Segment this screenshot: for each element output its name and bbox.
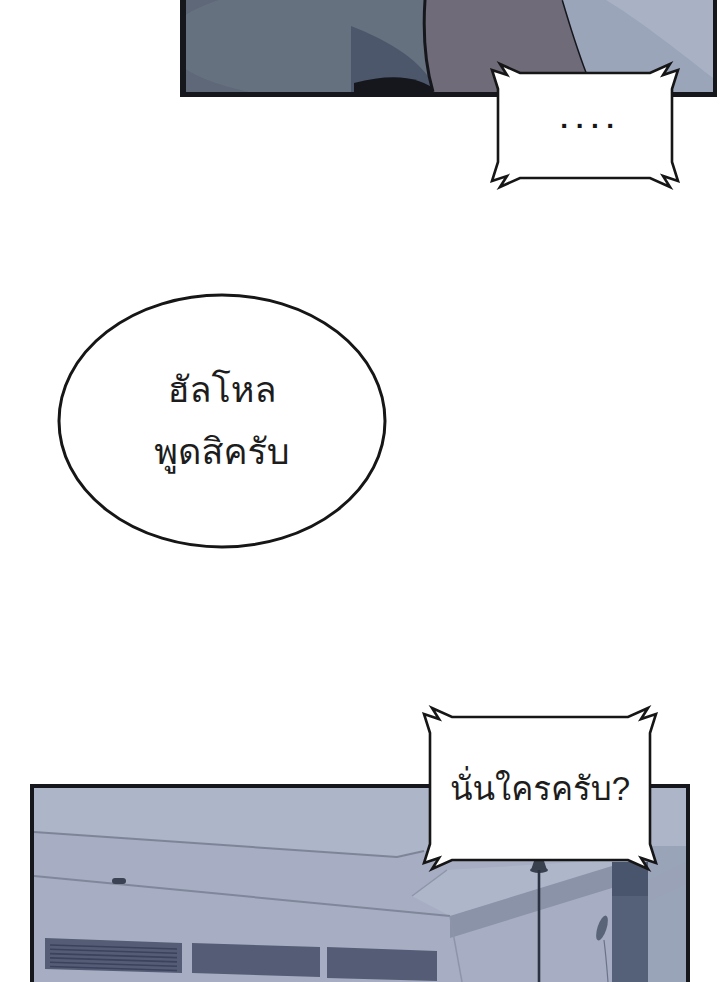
speech-bubble-silence xyxy=(486,61,684,190)
speech-bubble-question xyxy=(418,705,662,872)
smoke-detector xyxy=(112,878,126,884)
hello-bubble-shape xyxy=(59,295,385,547)
question-bubble-shape xyxy=(424,708,656,869)
speech-bubble-hello xyxy=(50,286,395,556)
vent-section-mid xyxy=(192,943,320,977)
silence-bubble-shape xyxy=(492,64,678,187)
comic-page: ···· ฮัลโหล พูดสิครับ นั่นใครครับ? xyxy=(0,0,720,982)
vent-section-right xyxy=(327,947,437,981)
lamp-cord xyxy=(538,870,541,982)
